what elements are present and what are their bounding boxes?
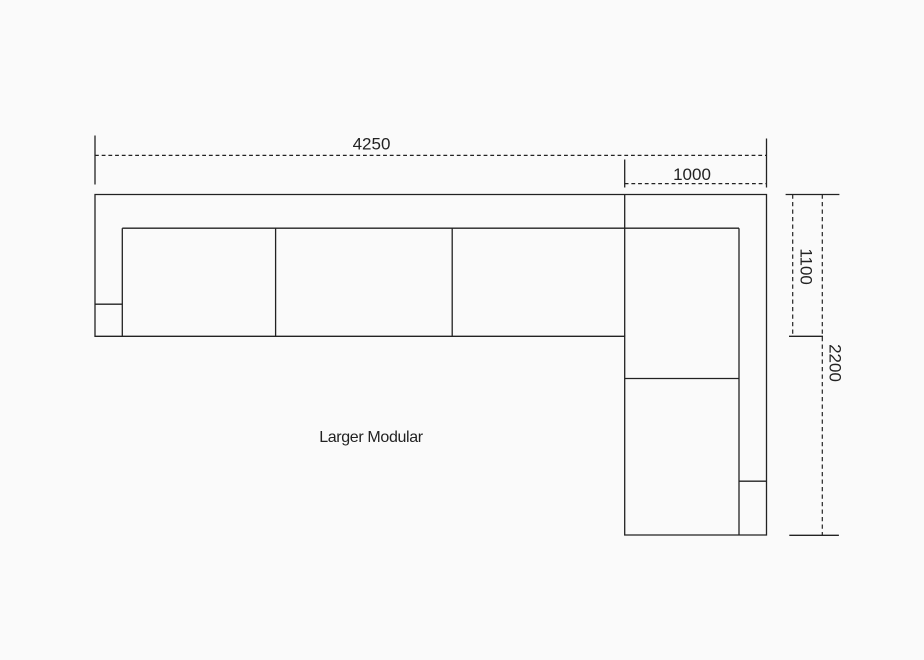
svg-text:4250: 4250 (353, 135, 391, 154)
svg-text:2200: 2200 (826, 344, 845, 382)
svg-text:1000: 1000 (673, 165, 711, 184)
svg-text:Larger Modular: Larger Modular (319, 429, 424, 446)
svg-text:1100: 1100 (797, 248, 816, 285)
